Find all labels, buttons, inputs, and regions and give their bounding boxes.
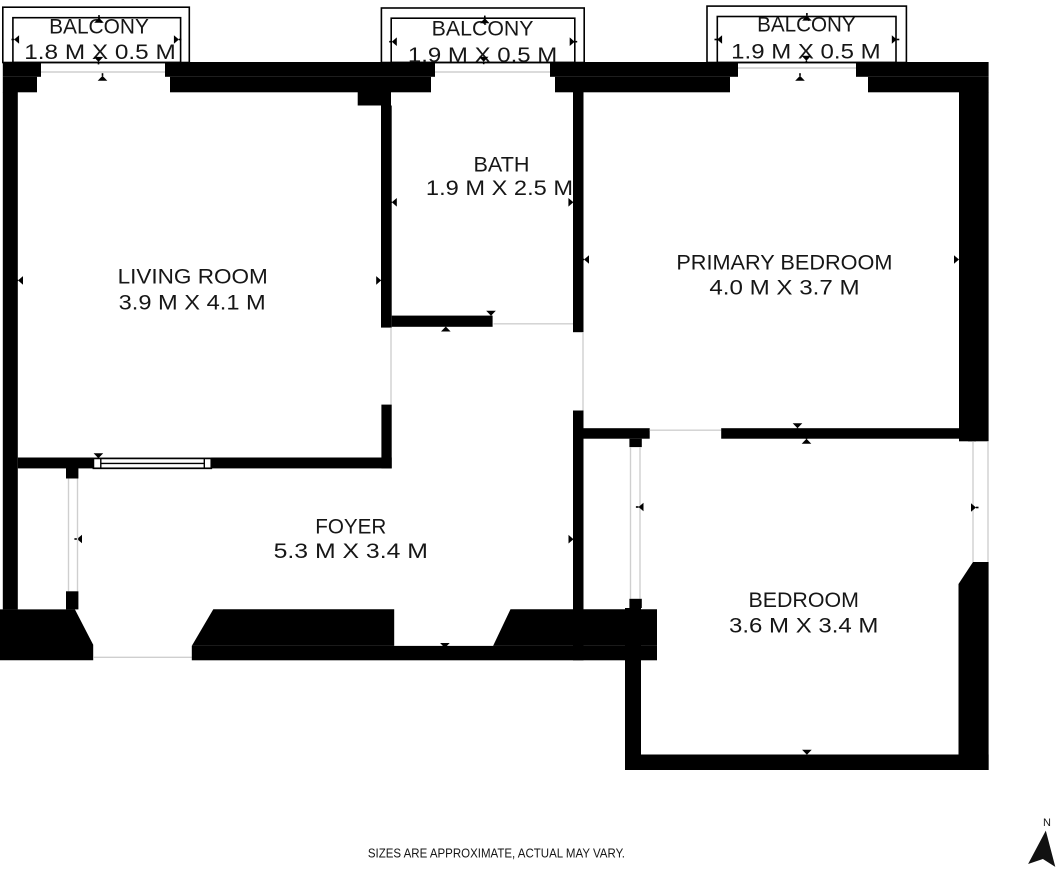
svg-text:N: N <box>1043 817 1051 829</box>
svg-text:SIZES ARE APPROXIMATE, ACTUAL: SIZES ARE APPROXIMATE, ACTUAL MAY VARY. <box>368 846 625 861</box>
svg-text:BEDROOM: BEDROOM <box>749 588 859 612</box>
svg-text:FOYER: FOYER <box>315 515 386 539</box>
svg-text:PRIMARY BEDROOM: PRIMARY BEDROOM <box>676 250 892 274</box>
svg-text:1.9 M X 2.5 M: 1.9 M X 2.5 M <box>426 176 573 200</box>
svg-text:3.9 M X 4.1 M: 3.9 M X 4.1 M <box>119 290 266 314</box>
svg-text:5.3 M X 3.4 M: 5.3 M X 3.4 M <box>274 539 428 563</box>
svg-text:BATH: BATH <box>474 153 530 177</box>
svg-text:4.0 M X 3.7 M: 4.0 M X 3.7 M <box>709 275 859 299</box>
svg-text:LIVING ROOM: LIVING ROOM <box>118 265 268 289</box>
svg-text:3.6 M X 3.4 M: 3.6 M X 3.4 M <box>729 613 878 637</box>
